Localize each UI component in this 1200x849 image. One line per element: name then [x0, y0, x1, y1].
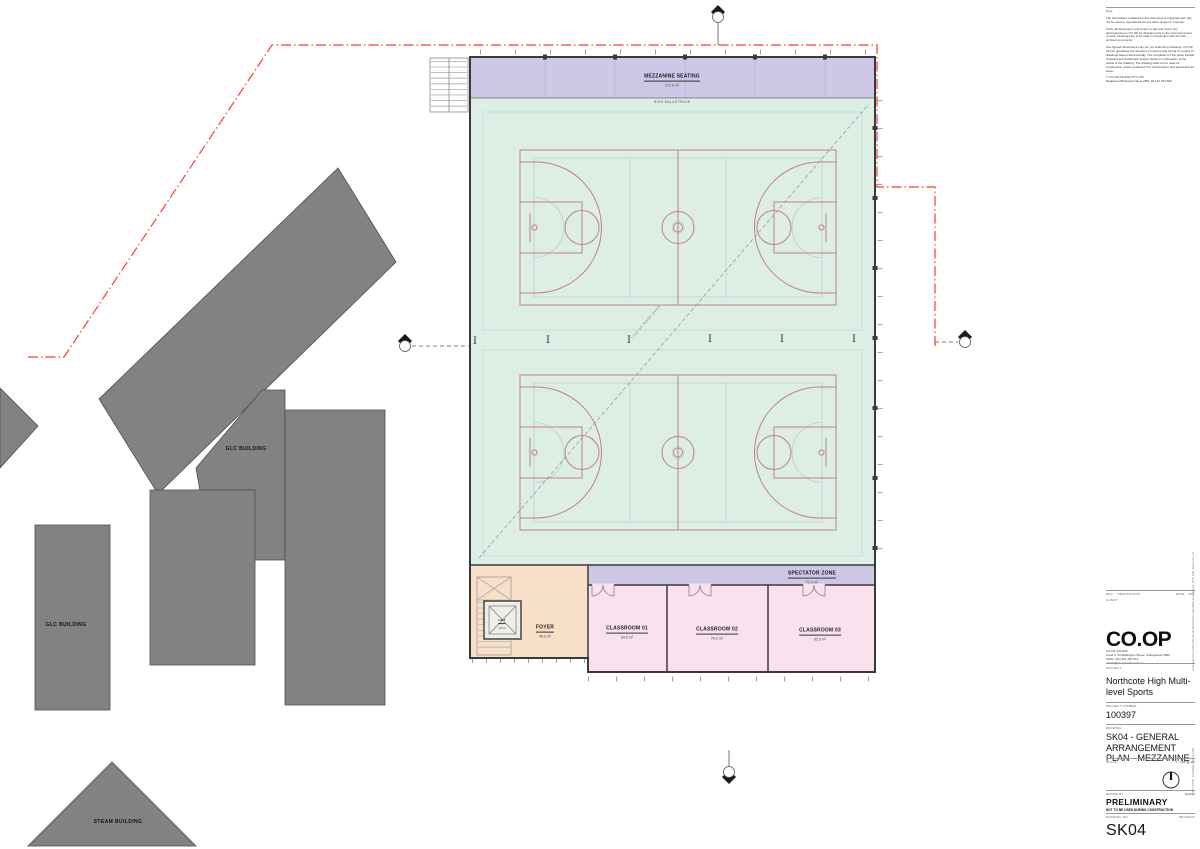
titleblock-rule	[1106, 7, 1195, 8]
room-tag-classroom-02: CLASSROOM 02 76.2 m²	[696, 618, 738, 641]
room-tag-mezzanine-seating: MEZZANINE SEATING 172.9 m²	[644, 65, 700, 88]
titleblock-rule	[1106, 790, 1195, 791]
section-marker-bottom	[722, 750, 736, 784]
rev-col: REV.	[1106, 592, 1114, 596]
drawing-sheet: I I I I I I	[0, 0, 1200, 849]
room-area: 3.6 m²	[498, 627, 505, 630]
svg-text:I: I	[473, 336, 477, 347]
project-label: PROJECT	[1106, 666, 1195, 670]
project-name: Northcote High Multi-level Sports	[1106, 676, 1195, 697]
scale-label: SCALE	[1106, 760, 1117, 764]
room-name: CLASSROOM 02	[696, 627, 738, 635]
titleblock-rule	[1106, 813, 1195, 814]
notes-paragraph: Verify all dimensions and levels on site…	[1106, 28, 1195, 44]
room-area: 64.5 m²	[606, 635, 648, 639]
room-area: 76.2 m²	[696, 636, 738, 640]
room-area: 172.9 m²	[644, 83, 700, 87]
svg-text:I: I	[780, 334, 784, 345]
plan-canvas: I I I I I I	[0, 0, 1200, 849]
high-balustrade-note: HIGH BALUSTRADE	[654, 100, 691, 104]
room-name: MEZZANINE SEATING	[644, 74, 700, 82]
revision-table-header: REV. DESCRIPTION DATE APP	[1106, 592, 1195, 596]
drawing-number-row: DRAWING NO. REVISION	[1106, 815, 1195, 819]
description-col: DESCRIPTION	[1118, 592, 1172, 596]
section-marker-right	[935, 330, 972, 348]
drawing-no-label: DRAWING NO.	[1106, 815, 1129, 819]
room-area: 45.2 m²	[536, 634, 554, 638]
revision-label: REVISION	[1179, 815, 1195, 819]
notes-paragraph: The information contained in this docume…	[1106, 17, 1195, 25]
room-name: FOYER	[536, 625, 554, 633]
titleblock-rule	[1106, 758, 1195, 759]
client-label: CLIENT	[1106, 598, 1195, 602]
titleblock-rule	[1106, 590, 1195, 591]
drawn-by-row: DRAWN BY Author	[1106, 792, 1195, 796]
room-tag-classroom-01: CLASSROOM 01 64.5 m²	[606, 617, 648, 640]
room-area: 62.5 m²	[799, 637, 841, 641]
date-col: DATE	[1176, 592, 1185, 596]
titleblock-rule	[1106, 663, 1195, 664]
file-reference-sidebar: Autodesk Docs://CO.OP Studio/Northcote H…	[1191, 552, 1195, 671]
drawing-label: DRAWING	[1106, 726, 1195, 730]
context-label-steam: STEAM BUILDING	[94, 819, 143, 825]
titleblock-rule	[1106, 702, 1195, 703]
firm-logo: CO.OP	[1106, 629, 1195, 650]
svg-text:I: I	[708, 334, 712, 345]
notes-heading: Note:	[1106, 10, 1195, 14]
section-marker-left	[398, 334, 470, 352]
room-tag-lift: LIFT 3.6 m²	[498, 608, 505, 630]
context-buildings	[0, 168, 396, 846]
room-name: CLASSROOM 01	[606, 626, 648, 634]
external-stair	[430, 58, 468, 112]
room-name: CLASSROOM 03	[799, 628, 841, 636]
notes-block: Note: The information contained in this …	[1106, 10, 1195, 87]
room-tag-spectator-zone: SPECTATOR ZONE 71.0 m²	[788, 562, 836, 585]
room-area: 71.0 m²	[788, 580, 836, 584]
context-label-glc-upper: GLC BUILDING	[226, 446, 267, 452]
drawing-number: SK04	[1106, 822, 1195, 840]
titleblock-rule	[1106, 724, 1195, 725]
plot-date-sidebar: PLOT DATE: 2/11/2023 3:53:23 PM	[1191, 748, 1195, 795]
project-number-label: PROJECT NUMBER	[1106, 704, 1195, 708]
project-number: 100397	[1106, 710, 1195, 721]
north-arrow-icon	[1160, 769, 1182, 791]
section-marker-top	[711, 5, 725, 45]
notes-paragraph: © CO.OP STUDIO PTY LTD Registered Busine…	[1106, 76, 1195, 84]
room-tag-foyer: FOYER 45.2 m²	[536, 616, 554, 639]
svg-text:I: I	[546, 335, 550, 346]
room-name: SPECTATOR ZONE	[788, 571, 836, 579]
drawn-by-label: DRAWN BY	[1106, 792, 1124, 796]
status-stamp: PRELIMINARY	[1106, 797, 1195, 807]
scale-row: SCALE 1 : 100 @ A0	[1106, 760, 1195, 764]
room-tag-classroom-03: CLASSROOM 03 62.5 m²	[799, 619, 841, 642]
context-label-glc-lower: GLC BUILDING	[46, 622, 87, 628]
room-name: LIFT	[498, 618, 505, 624]
svg-text:I: I	[852, 334, 856, 345]
notes-paragraph: Use figured dimensions only. Do not scal…	[1106, 46, 1195, 73]
status-note: NOT TO BE USED DURING CONSTRUCTION	[1106, 808, 1195, 812]
